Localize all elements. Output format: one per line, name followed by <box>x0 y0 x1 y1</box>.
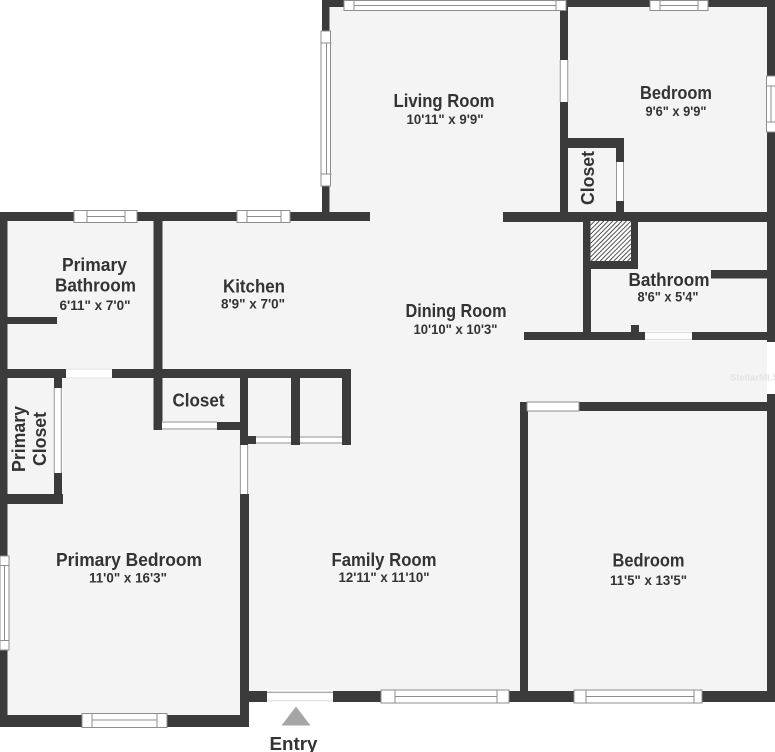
svg-text:Primary: Primary <box>8 405 29 472</box>
svg-text:8'9" x 7'0": 8'9" x 7'0" <box>221 296 285 312</box>
svg-text:Kitchen: Kitchen <box>223 276 285 297</box>
svg-text:12'11" x 11'10": 12'11" x 11'10" <box>339 569 430 585</box>
svg-text:11'5" x 13'5": 11'5" x 13'5" <box>610 572 687 588</box>
svg-text:Closet: Closet <box>29 412 50 466</box>
svg-text:10'11" x 9'9": 10'11" x 9'9" <box>407 111 484 127</box>
svg-text:Entry: Entry <box>270 733 319 752</box>
svg-text:StellarMLS: StellarMLS <box>730 373 775 384</box>
svg-text:Closet: Closet <box>173 390 225 411</box>
svg-text:Bathroom: Bathroom <box>629 269 710 290</box>
svg-text:Bedroom: Bedroom <box>613 550 685 571</box>
svg-text:9'6" x 9'9": 9'6" x 9'9" <box>646 103 707 119</box>
svg-text:Primary: Primary <box>62 254 128 275</box>
svg-text:Bathroom: Bathroom <box>55 275 136 296</box>
svg-text:Bedroom: Bedroom <box>640 82 712 103</box>
svg-text:Closet: Closet <box>577 151 598 205</box>
svg-text:Primary Bedroom: Primary Bedroom <box>56 549 202 570</box>
svg-text:6'11" x 7'0": 6'11" x 7'0" <box>60 297 131 313</box>
svg-text:11'0" x 16'3": 11'0" x 16'3" <box>89 570 167 586</box>
svg-text:8'6" x 5'4": 8'6" x 5'4" <box>638 289 699 305</box>
svg-text:Living Room: Living Room <box>394 90 495 111</box>
svg-text:10'10" x 10'3": 10'10" x 10'3" <box>414 321 498 337</box>
svg-text:Family Room: Family Room <box>332 549 437 570</box>
svg-text:Dining Room: Dining Room <box>406 300 507 321</box>
